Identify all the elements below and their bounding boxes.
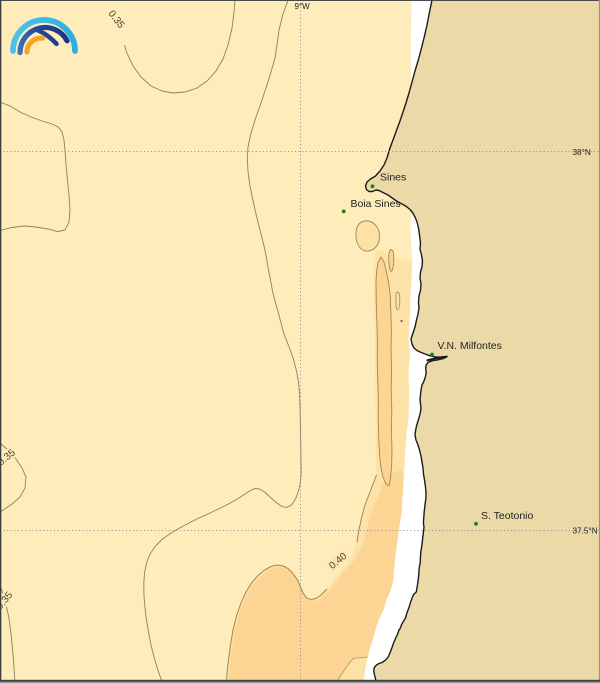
svg-text:V.N. Milfontes: V.N. Milfontes: [438, 340, 502, 352]
svg-text:38°N: 38°N: [573, 148, 591, 157]
svg-text:S. Teotonio: S. Teotonio: [481, 510, 534, 522]
svg-text:Sines: Sines: [380, 172, 406, 184]
svg-text:9°W: 9°W: [295, 2, 311, 11]
svg-text:Boia Sines: Boia Sines: [351, 198, 401, 210]
svg-text:37.5°N: 37.5°N: [573, 527, 598, 536]
